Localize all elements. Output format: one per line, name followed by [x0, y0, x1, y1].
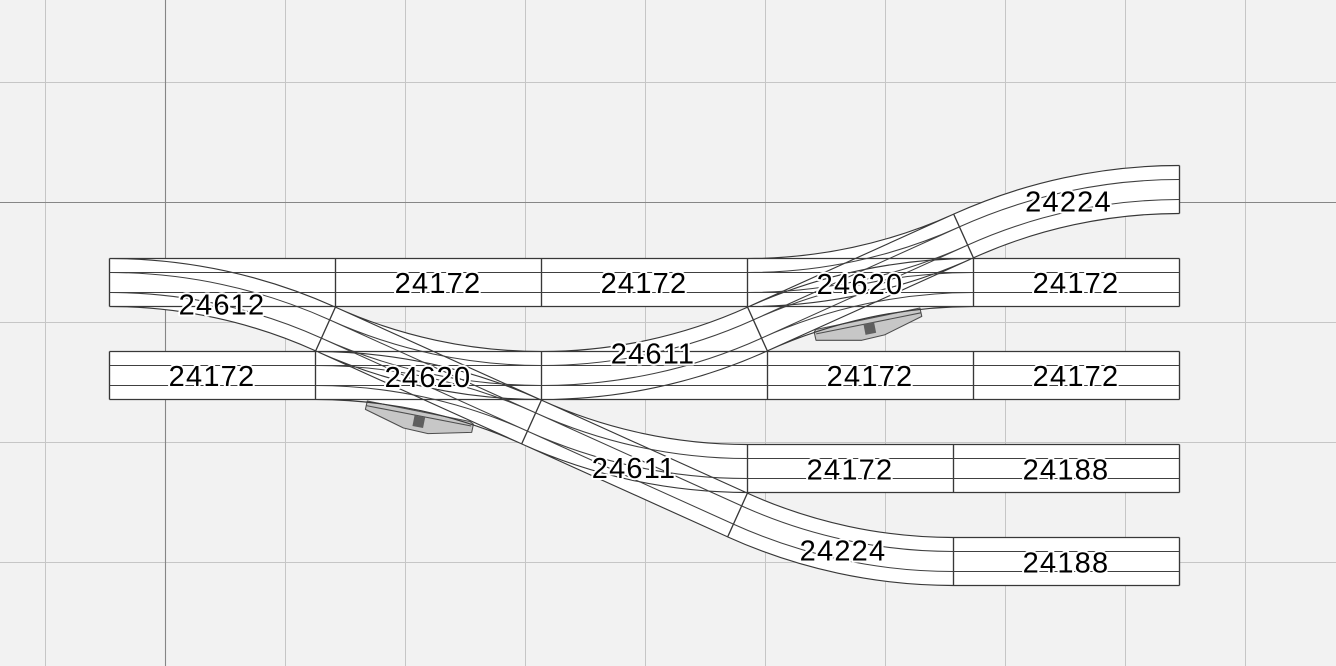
- svg-text:24620: 24620: [385, 362, 472, 394]
- svg-text:24224: 24224: [800, 536, 887, 568]
- svg-text:24188: 24188: [1023, 455, 1110, 487]
- svg-text:24224: 24224: [1025, 187, 1112, 219]
- svg-text:24172: 24172: [395, 268, 482, 300]
- svg-text:24611: 24611: [592, 453, 677, 485]
- svg-text:24188: 24188: [1023, 548, 1110, 580]
- svg-text:24172: 24172: [1033, 361, 1120, 393]
- svg-text:24620: 24620: [817, 269, 904, 301]
- svg-text:24611: 24611: [611, 339, 696, 371]
- svg-text:24612: 24612: [179, 290, 266, 322]
- svg-text:24172: 24172: [807, 455, 894, 487]
- svg-text:24172: 24172: [1033, 268, 1120, 300]
- svg-text:24172: 24172: [169, 361, 256, 393]
- svg-text:24172: 24172: [601, 268, 688, 300]
- svg-text:24172: 24172: [827, 361, 914, 393]
